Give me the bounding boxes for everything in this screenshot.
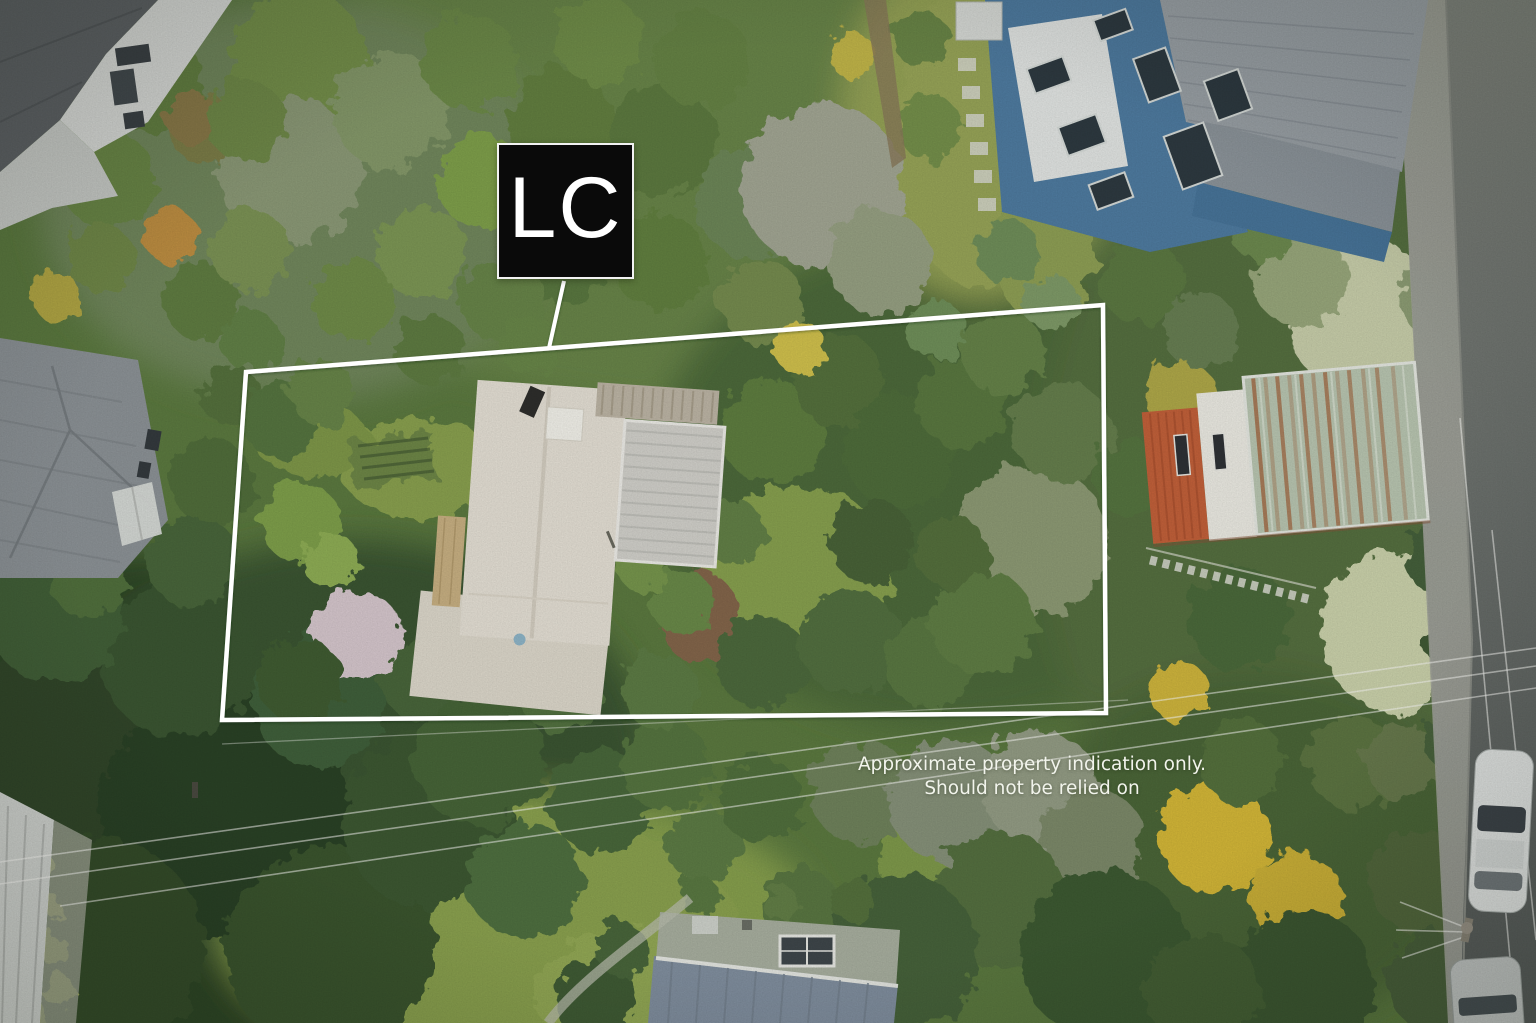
agency-logo-text: LC xyxy=(509,165,623,251)
aerial-scene xyxy=(0,0,1536,1023)
disclaimer-line-1: Approximate property indication only. xyxy=(782,753,1282,777)
aerial-photo: LC Approximate property indication only.… xyxy=(0,0,1536,1023)
agency-logo: LC xyxy=(497,143,634,279)
disclaimer-line-2: Should not be relied on xyxy=(782,777,1282,801)
vignette xyxy=(0,0,1536,1023)
disclaimer-text: Approximate property indication only. Sh… xyxy=(782,753,1282,802)
